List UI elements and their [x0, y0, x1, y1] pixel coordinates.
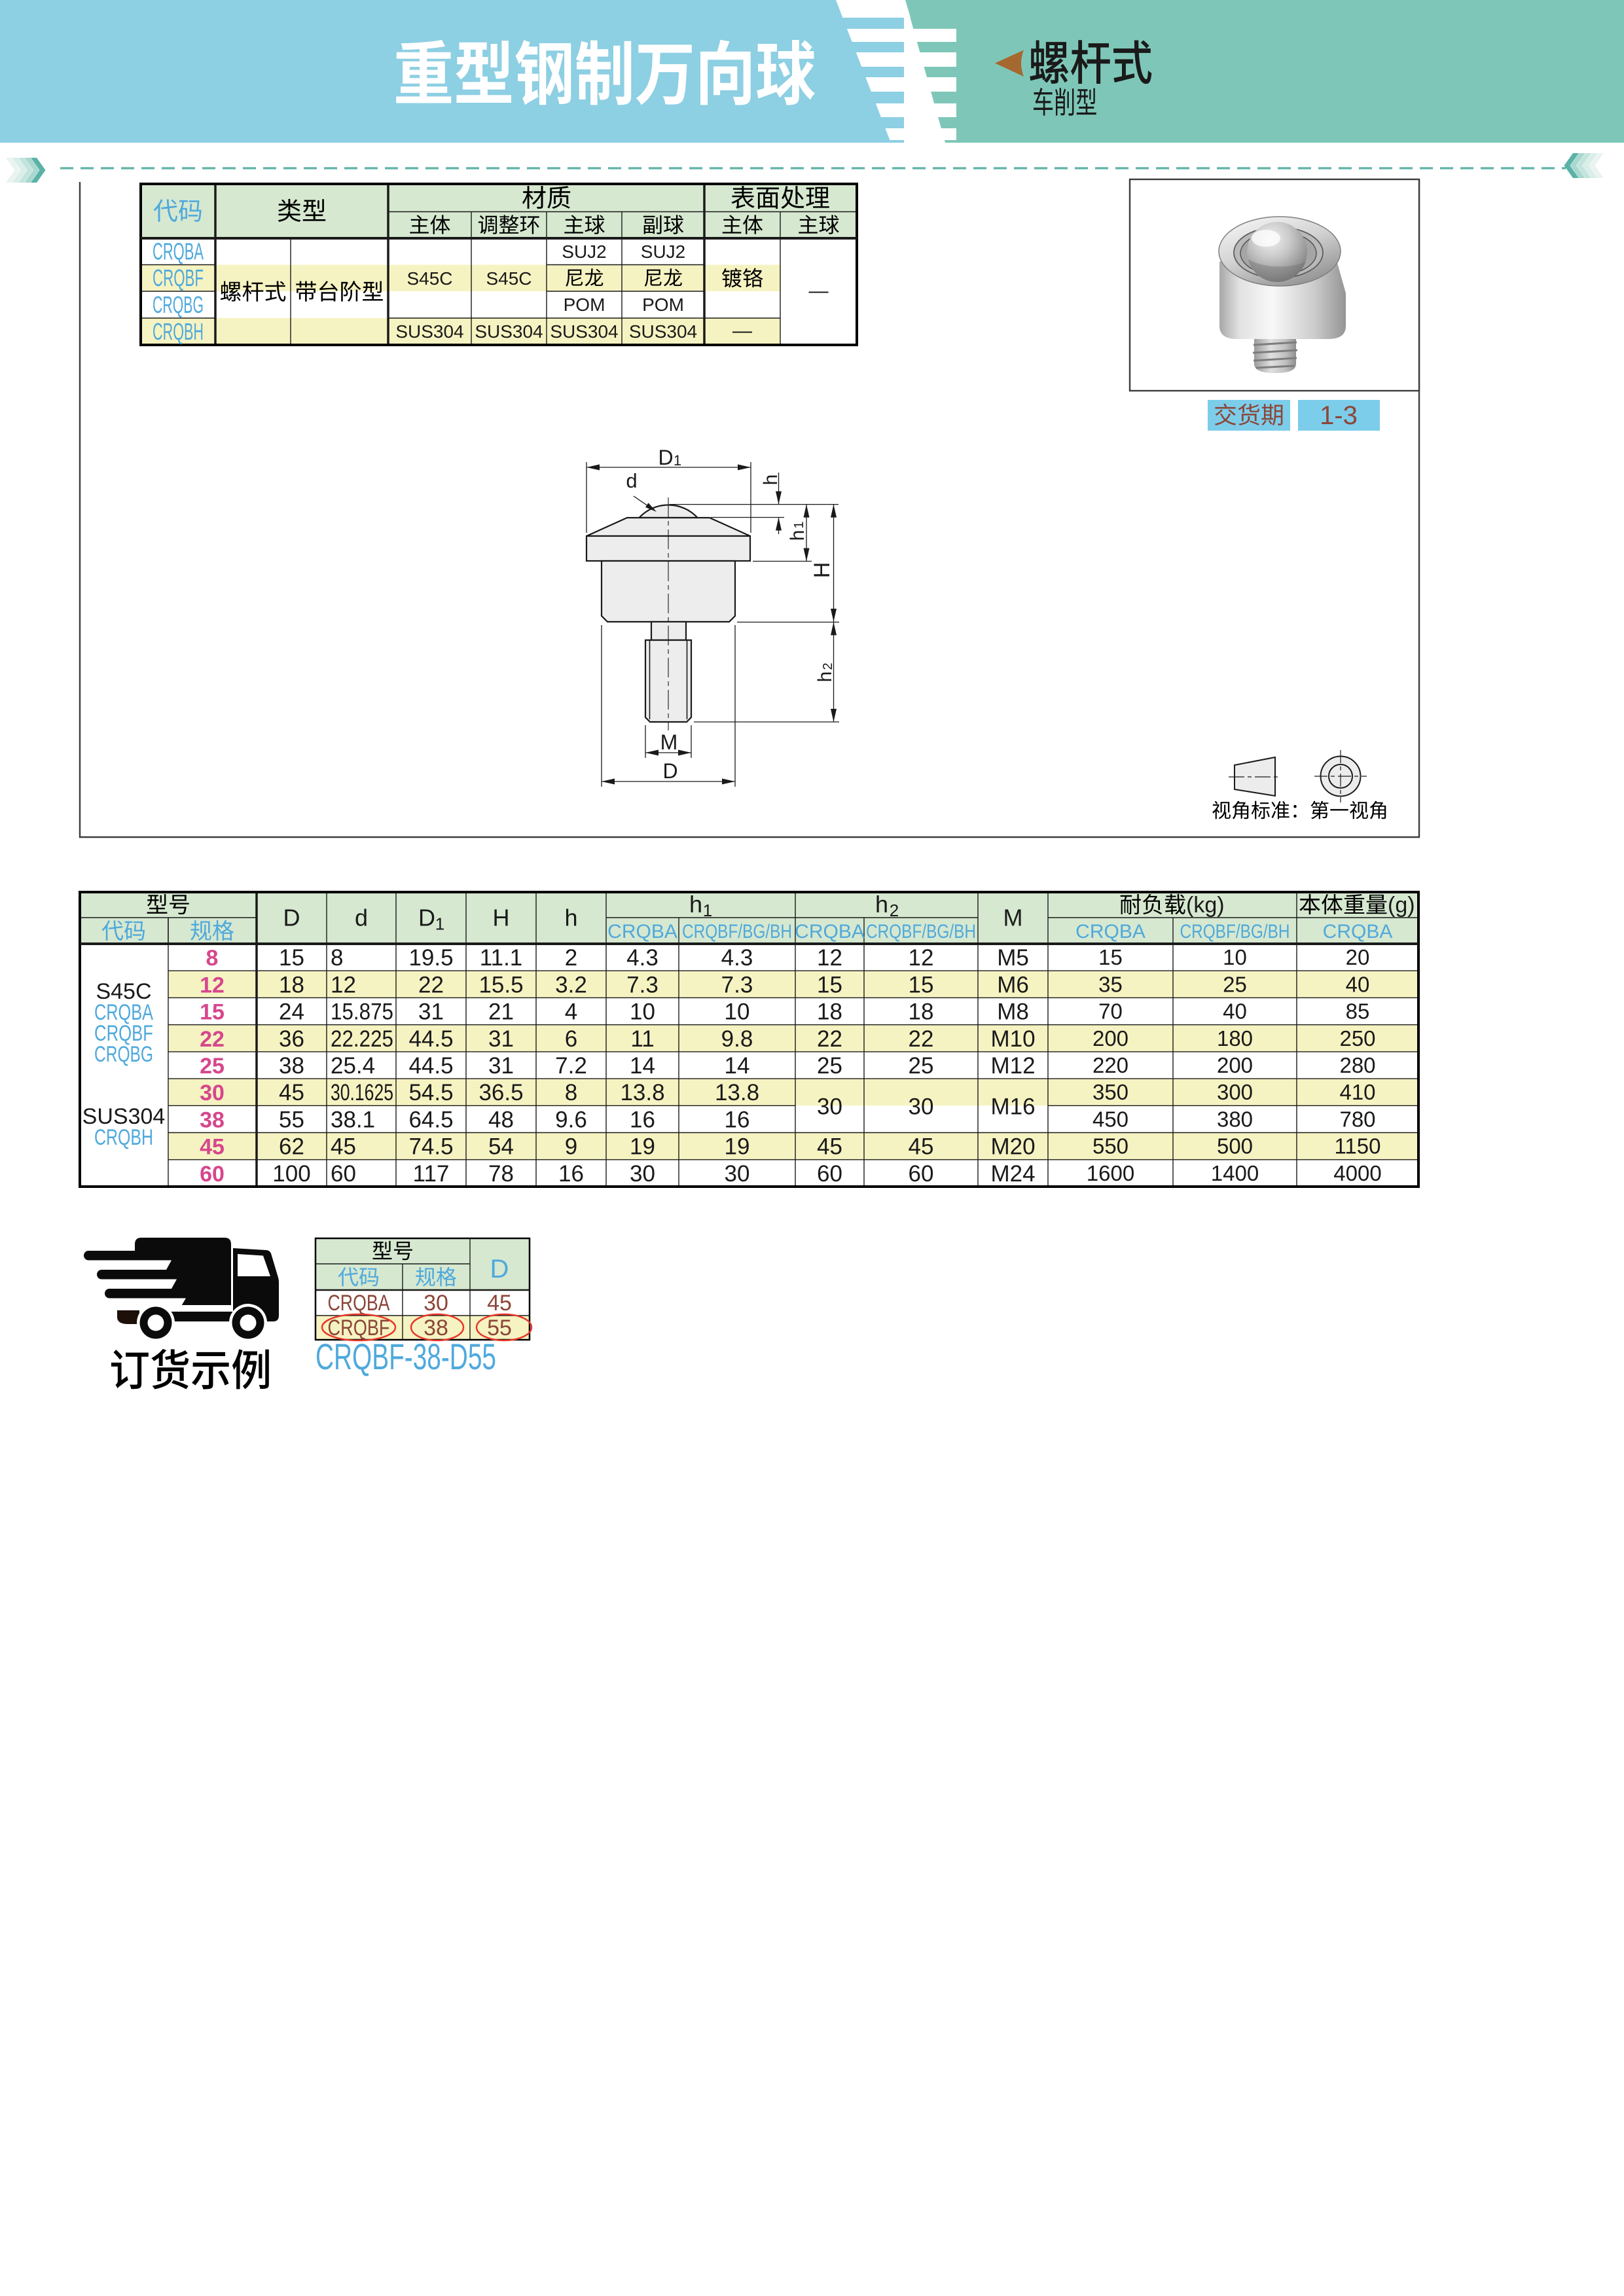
- svg-text:31: 31: [488, 1026, 514, 1052]
- svg-text:25: 25: [1223, 972, 1247, 996]
- svg-text:8: 8: [331, 945, 343, 971]
- svg-text:CRQBH: CRQBH: [153, 318, 204, 345]
- svg-text:38.1: 38.1: [331, 1107, 375, 1132]
- svg-text:45: 45: [487, 1291, 512, 1316]
- svg-text:18: 18: [279, 972, 304, 997]
- svg-text:18: 18: [817, 999, 842, 1025]
- svg-text:h: h: [760, 475, 782, 486]
- svg-text:CRQBF/BG/BH: CRQBF/BG/BH: [866, 921, 976, 942]
- svg-text:7.3: 7.3: [626, 972, 659, 997]
- svg-text:1: 1: [703, 901, 712, 920]
- svg-text:54: 54: [488, 1134, 514, 1160]
- svg-text:74.5: 74.5: [408, 1134, 453, 1160]
- svg-text:3.2: 3.2: [555, 972, 587, 997]
- svg-text:21: 21: [488, 999, 514, 1025]
- svg-text:SUS304: SUS304: [475, 321, 543, 342]
- svg-text:(g): (g): [1388, 893, 1415, 918]
- svg-text:h: h: [814, 672, 836, 683]
- svg-text:38: 38: [200, 1107, 225, 1132]
- svg-text:7.3: 7.3: [721, 972, 753, 997]
- svg-text:M5: M5: [997, 945, 1029, 971]
- svg-text:15.5: 15.5: [478, 972, 523, 997]
- svg-text:1150: 1150: [1335, 1134, 1381, 1158]
- svg-text:d: d: [626, 469, 637, 492]
- svg-text:117: 117: [413, 1161, 450, 1187]
- svg-text:9.8: 9.8: [721, 1026, 753, 1052]
- svg-text:19: 19: [725, 1134, 750, 1160]
- svg-text:60: 60: [909, 1161, 934, 1187]
- svg-text:CRQBA: CRQBA: [607, 921, 677, 942]
- svg-text:38: 38: [279, 1053, 304, 1079]
- svg-text:—: —: [732, 320, 752, 342]
- svg-text:D: D: [658, 446, 673, 469]
- svg-text:4000: 4000: [1333, 1161, 1381, 1185]
- svg-text:CRQBF-38-D55: CRQBF-38-D55: [316, 1336, 496, 1377]
- svg-text:44.5: 44.5: [408, 1026, 453, 1052]
- svg-text:D: D: [490, 1255, 509, 1283]
- svg-text:2: 2: [821, 662, 835, 670]
- svg-text:D: D: [283, 905, 300, 931]
- svg-text:M: M: [660, 730, 678, 754]
- svg-text:9: 9: [565, 1134, 577, 1160]
- svg-text:44.5: 44.5: [408, 1053, 453, 1079]
- svg-text:12: 12: [200, 973, 225, 997]
- svg-text:M12: M12: [990, 1053, 1035, 1079]
- svg-text:—: —: [809, 280, 829, 302]
- svg-text:CRQBA: CRQBA: [153, 238, 204, 265]
- svg-text:2: 2: [565, 945, 577, 971]
- svg-text:10: 10: [725, 999, 750, 1025]
- svg-text:15: 15: [909, 972, 934, 997]
- svg-text:M20: M20: [990, 1134, 1035, 1160]
- svg-text:9.6: 9.6: [555, 1107, 587, 1132]
- svg-text:48: 48: [488, 1107, 514, 1132]
- svg-text:11: 11: [630, 1026, 654, 1052]
- svg-text:22: 22: [200, 1027, 225, 1052]
- svg-text:16: 16: [630, 1107, 655, 1132]
- svg-text:D: D: [662, 759, 677, 783]
- svg-text:30: 30: [630, 1161, 655, 1187]
- svg-text:4: 4: [565, 999, 577, 1025]
- svg-text:CRQBG: CRQBG: [153, 291, 204, 318]
- svg-text:S45C: S45C: [406, 268, 452, 289]
- svg-text:36: 36: [279, 1026, 304, 1052]
- svg-text:22: 22: [817, 1026, 842, 1052]
- svg-text:16: 16: [558, 1161, 584, 1187]
- svg-text:M16: M16: [990, 1094, 1035, 1120]
- svg-text:H: H: [810, 562, 835, 579]
- svg-text:CRQBA: CRQBA: [1323, 921, 1393, 942]
- svg-text:45: 45: [331, 1134, 356, 1160]
- svg-text:22.225: 22.225: [331, 1026, 393, 1052]
- svg-text:180: 180: [1217, 1026, 1253, 1050]
- svg-text:h: h: [564, 905, 577, 931]
- svg-text:12: 12: [817, 945, 842, 971]
- svg-text:CRQBA: CRQBA: [328, 1291, 390, 1316]
- svg-text:62: 62: [279, 1134, 304, 1160]
- svg-text:(kg): (kg): [1186, 893, 1225, 918]
- svg-text:45: 45: [909, 1134, 934, 1160]
- svg-text:CRQBF: CRQBF: [153, 264, 204, 291]
- svg-text:19.5: 19.5: [408, 945, 453, 971]
- svg-text:12: 12: [331, 972, 356, 997]
- svg-text:2: 2: [890, 901, 899, 920]
- svg-text:30: 30: [909, 1094, 934, 1120]
- svg-text:CRQBH: CRQBH: [94, 1125, 153, 1150]
- svg-text:h: h: [787, 530, 808, 541]
- svg-text:13.8: 13.8: [620, 1080, 664, 1105]
- svg-text:D: D: [418, 905, 435, 931]
- svg-text:11.1: 11.1: [480, 945, 523, 971]
- svg-text:30.1625: 30.1625: [331, 1080, 393, 1105]
- svg-text:1400: 1400: [1211, 1161, 1259, 1185]
- svg-text:8: 8: [206, 946, 219, 971]
- svg-text:250: 250: [1339, 1026, 1375, 1050]
- svg-text:200: 200: [1217, 1053, 1253, 1077]
- svg-text:45: 45: [817, 1134, 842, 1160]
- svg-text:1600: 1600: [1087, 1161, 1134, 1185]
- svg-text:19: 19: [630, 1134, 655, 1160]
- svg-text:15: 15: [817, 972, 842, 997]
- svg-text:CRQBF/BG/BH: CRQBF/BG/BH: [1180, 921, 1290, 942]
- svg-text:70: 70: [1098, 999, 1123, 1024]
- svg-text:h: h: [689, 891, 702, 918]
- svg-text:20: 20: [1346, 945, 1370, 969]
- svg-text:CRQBF/BG/BH: CRQBF/BG/BH: [682, 921, 792, 942]
- svg-text:1-3: 1-3: [1320, 401, 1358, 430]
- svg-text:POM: POM: [642, 295, 684, 315]
- svg-text:350: 350: [1092, 1080, 1128, 1104]
- svg-text:6: 6: [565, 1026, 577, 1052]
- svg-text:7.2: 7.2: [555, 1053, 587, 1079]
- svg-text:40: 40: [1346, 972, 1370, 996]
- svg-text:SUS304: SUS304: [629, 321, 697, 342]
- svg-text:1: 1: [792, 521, 806, 528]
- svg-text:500: 500: [1217, 1134, 1253, 1158]
- svg-text:16: 16: [725, 1107, 750, 1132]
- svg-text:36.5: 36.5: [478, 1080, 523, 1105]
- svg-text:22: 22: [909, 1026, 934, 1052]
- svg-text:30: 30: [725, 1161, 750, 1187]
- svg-text:300: 300: [1217, 1080, 1253, 1104]
- svg-text:1: 1: [435, 914, 444, 934]
- svg-text:POM: POM: [564, 295, 605, 315]
- svg-text:4.3: 4.3: [721, 945, 753, 971]
- svg-text:15: 15: [1098, 945, 1123, 969]
- svg-text:8: 8: [565, 1080, 577, 1105]
- svg-text:h: h: [875, 891, 888, 918]
- svg-text:10: 10: [630, 999, 655, 1025]
- svg-text:45: 45: [200, 1135, 225, 1160]
- svg-text:410: 410: [1339, 1080, 1375, 1104]
- svg-text:10: 10: [1223, 945, 1247, 969]
- svg-text:78: 78: [488, 1161, 514, 1187]
- svg-text:780: 780: [1339, 1107, 1375, 1131]
- svg-text:30: 30: [817, 1094, 842, 1120]
- svg-text:14: 14: [630, 1053, 655, 1079]
- svg-text:200: 200: [1092, 1026, 1128, 1050]
- svg-text:4.3: 4.3: [626, 945, 659, 971]
- svg-text:25: 25: [817, 1053, 842, 1079]
- svg-text:54.5: 54.5: [408, 1080, 453, 1105]
- svg-text:M: M: [1003, 905, 1023, 931]
- svg-text:d: d: [355, 905, 368, 931]
- svg-text:CRQBA: CRQBA: [795, 921, 865, 942]
- svg-text:CRQBG: CRQBG: [94, 1042, 153, 1067]
- svg-text:18: 18: [909, 999, 934, 1025]
- svg-text:M24: M24: [990, 1161, 1035, 1187]
- svg-text:60: 60: [200, 1162, 225, 1187]
- svg-text:M6: M6: [997, 972, 1029, 997]
- svg-text:60: 60: [331, 1161, 356, 1187]
- svg-text:25.4: 25.4: [331, 1053, 375, 1079]
- svg-text:550: 550: [1092, 1134, 1128, 1158]
- svg-text:SUJ2: SUJ2: [641, 242, 685, 262]
- svg-text:SUS304: SUS304: [395, 321, 463, 342]
- svg-text:H: H: [493, 905, 510, 931]
- svg-text:SUS304: SUS304: [550, 321, 618, 342]
- svg-text:220: 220: [1092, 1053, 1128, 1077]
- svg-text:S45C: S45C: [486, 268, 532, 289]
- svg-text:24: 24: [279, 999, 304, 1025]
- svg-text:15: 15: [279, 945, 304, 971]
- svg-text:22: 22: [418, 972, 444, 997]
- svg-text:450: 450: [1092, 1107, 1128, 1131]
- svg-text:100: 100: [272, 1161, 310, 1187]
- svg-text:15.875: 15.875: [331, 999, 393, 1025]
- svg-text:60: 60: [817, 1161, 842, 1187]
- svg-text:15: 15: [200, 1000, 225, 1025]
- svg-text:M8: M8: [997, 999, 1029, 1025]
- svg-text:45: 45: [279, 1080, 304, 1105]
- svg-text:SUJ2: SUJ2: [562, 242, 606, 262]
- svg-text:31: 31: [418, 999, 444, 1025]
- svg-text:30: 30: [200, 1081, 225, 1105]
- svg-text:380: 380: [1217, 1107, 1253, 1131]
- svg-text:30: 30: [424, 1291, 448, 1316]
- svg-text:25: 25: [909, 1053, 934, 1079]
- svg-text:55: 55: [279, 1107, 304, 1132]
- svg-text:CRQBA: CRQBA: [1075, 921, 1146, 942]
- svg-text:64.5: 64.5: [408, 1107, 453, 1132]
- svg-text:35: 35: [1098, 972, 1123, 996]
- svg-text:M10: M10: [990, 1026, 1035, 1052]
- svg-text:14: 14: [725, 1053, 750, 1079]
- svg-text:40: 40: [1223, 999, 1247, 1024]
- svg-text:25: 25: [200, 1054, 225, 1079]
- svg-text:1: 1: [674, 452, 681, 469]
- svg-text:12: 12: [909, 945, 934, 971]
- svg-text:280: 280: [1339, 1053, 1375, 1077]
- svg-text:31: 31: [488, 1053, 514, 1079]
- svg-text:85: 85: [1346, 999, 1370, 1024]
- svg-text:13.8: 13.8: [715, 1080, 759, 1105]
